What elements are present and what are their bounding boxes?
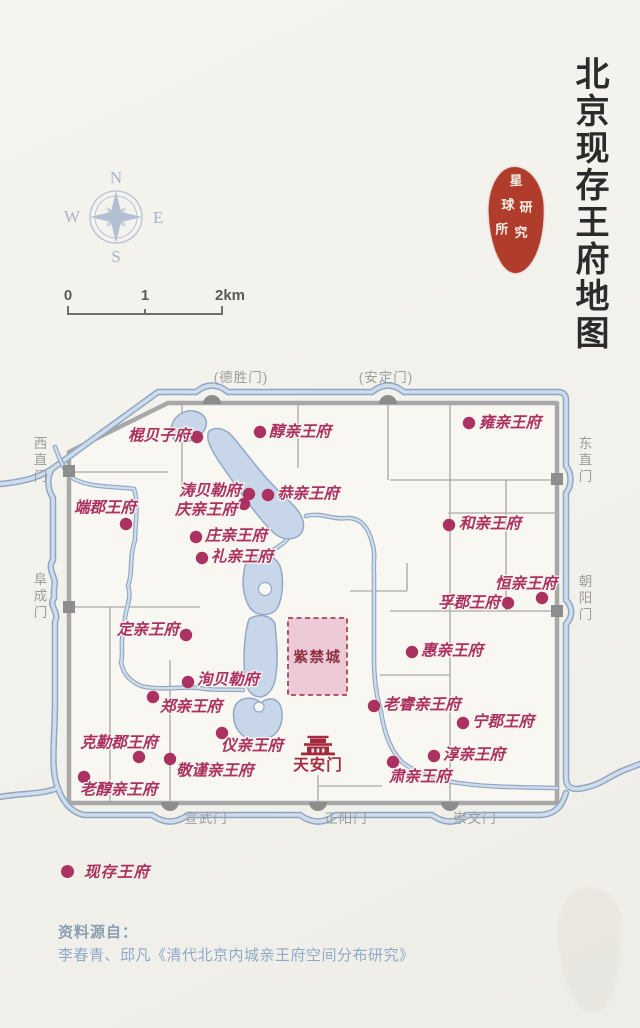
- mansion-dot-he-qin-wang-fu: [443, 519, 455, 531]
- compass-w-label: W: [64, 207, 81, 226]
- gate-mark-andingmen: [379, 395, 397, 404]
- gate-label-fuchengmen: 阜成门: [32, 571, 48, 622]
- mansion-dot-gong-qin-wang-fu: [262, 489, 274, 501]
- forbidden-city: 紫禁城: [288, 618, 347, 695]
- mansion-dot-duan-jun-wang-fu: [120, 518, 132, 530]
- mansion-label-chun2-qin-wang-fu: 淳亲王府: [443, 746, 508, 764]
- mansion-label-hui-qin-wang-fu: 惠亲王府: [421, 642, 486, 660]
- mansion-label-ke-qin-jun-wang-fu: 克勤郡王府: [80, 734, 160, 752]
- tiananmen-label: 天安门: [293, 755, 343, 774]
- mansion-dot-fu-jun-wang-fu: [502, 597, 514, 609]
- seal-char-xing: 星: [509, 174, 522, 187]
- mansion-dot-zhuang-qin-wang-fu: [190, 531, 202, 543]
- mansion-dot-ning-jun-wang-fu: [457, 717, 469, 729]
- mansion-label-lao-chun-qin-wang-fu: 老醇亲王府: [80, 781, 160, 799]
- legend-dot: [61, 865, 74, 878]
- gate-mark-fuchengmen: [63, 601, 75, 613]
- mansion-label-qing-qin-wang-fu: 庆亲王府: [174, 501, 240, 519]
- gate-label-deshengmen: (德胜门): [214, 370, 269, 385]
- mansion-lao-rui-qin-wang-fu: 老睿亲王府: [368, 696, 463, 714]
- mansion-dot-ke-qin-jun-wang-fu: [133, 751, 145, 763]
- seal-char-jiu: 究: [514, 226, 527, 239]
- gate-mark-chongwenmen: [441, 802, 459, 811]
- seal-char-yan: 研: [519, 200, 532, 213]
- mansion-dot-ding-qin-wang-fu: [180, 629, 192, 641]
- gate-mark-xizhimen: [63, 465, 75, 477]
- mansion-label-tao-beile-fu: 涛贝勒府: [179, 482, 244, 500]
- mansion-dot-yong-qin-wang-fu: [463, 417, 475, 429]
- mansion-dot-heng-qin-wang-fu: [536, 592, 548, 604]
- beihai-island: [259, 583, 272, 596]
- gate-label-dongzhimen: 东直门: [577, 436, 593, 486]
- gate-mark-chaoyangmen: [551, 605, 563, 617]
- mansion-label-gong-qin-wang-fu: 恭亲王府: [277, 485, 342, 503]
- compass-e-label: E: [153, 208, 163, 227]
- forbidden-city-label: 紫禁城: [294, 648, 342, 666]
- mansion-label-li-qin-wang-fu: 礼亲王府: [211, 548, 276, 566]
- source-line-1: 资料源自：: [58, 922, 415, 944]
- mansion-dot-qing-qin-wang-fu: [238, 498, 250, 510]
- mansion-label-yong-qin-wang-fu: 雍亲王府: [479, 414, 544, 432]
- compass-rose: N S E W: [64, 168, 163, 266]
- seal-char-suo: 所: [495, 222, 508, 235]
- legend: 现存王府: [61, 860, 150, 882]
- mansion-label-jing-jin-qin-wang-fu: 敬谨亲王府: [176, 762, 256, 780]
- mansion-label-su-qin-wang-fu: 肃亲王府: [388, 768, 454, 786]
- gate-label-andingmen: (安定门): [359, 370, 414, 385]
- mansion-dot-li-qin-wang-fu: [196, 552, 208, 564]
- gate-label-xizhimen: 西直门: [32, 436, 48, 486]
- mansion-dot-gun-beizi-fu: [191, 431, 203, 443]
- source-line-2: 李春青、邱凡《清代北京内城亲王府空间分布研究》: [58, 945, 415, 967]
- mansion-dot-zheng-qin-wang-fu: [147, 691, 159, 703]
- mansion-label-ding-qin-wang-fu: 定亲王府: [116, 621, 182, 639]
- mansion-dot-lao-rui-qin-wang-fu: [368, 700, 380, 712]
- mansion-label-xun-beile-fu: 洵贝勒府: [197, 671, 262, 689]
- compass-s-label: S: [111, 247, 120, 266]
- mansion-label-gun-beizi-fu: 棍贝子府: [128, 427, 193, 445]
- seal-char-qiu: 球: [501, 198, 514, 211]
- scale-label-0: 0: [64, 287, 72, 304]
- mansion-label-zhuang-qin-wang-fu: 庄亲王府: [204, 527, 270, 545]
- scale-label-2km: 2km: [215, 287, 245, 304]
- mansion-dot-xun-beile-fu: [182, 676, 194, 688]
- legend-label: 现存王府: [84, 860, 150, 882]
- mansion-label-ning-jun-wang-fu: 宁郡王府: [472, 713, 537, 731]
- mansion-label-zheng-qin-wang-fu: 郑亲王府: [159, 698, 225, 716]
- mansion-dot-su-qin-wang-fu: [387, 756, 399, 768]
- mansion-label-lao-rui-qin-wang-fu: 老睿亲王府: [383, 696, 463, 714]
- gate-label-chongwenmen: 崇文门: [453, 811, 497, 826]
- mansion-label-chun-qin-wang-fu: 醇亲王府: [269, 423, 334, 441]
- gate-label-xuanwumen: 宣武门: [184, 811, 228, 826]
- scale-bar-line: [68, 306, 222, 314]
- mansion-dot-chun2-qin-wang-fu: [428, 750, 440, 762]
- gate-mark-xuanwumen: [161, 802, 179, 811]
- scale-label-1: 1: [141, 287, 149, 304]
- gate-mark-zhengyangmen: [309, 802, 327, 811]
- scale-bar: 0 1 2km: [64, 287, 245, 314]
- poster-title: 北京现存王府地图: [564, 56, 613, 356]
- mansion-dot-hui-qin-wang-fu: [406, 646, 418, 658]
- mansion-label-yi-qin-wang-fu: 仪亲王府: [221, 737, 286, 755]
- mansion-label-heng-qin-wang-fu: 恒亲王府: [495, 575, 560, 593]
- gate-label-chaoyangmen: 朝阳门: [577, 574, 593, 624]
- mansion-label-duan-jun-wang-fu: 端郡王府: [74, 499, 139, 517]
- mansion-dot-jing-jin-qin-wang-fu: [164, 753, 176, 765]
- mansion-label-he-qin-wang-fu: 和亲王府: [459, 515, 524, 533]
- gate-mark-dongzhimen: [551, 473, 563, 485]
- mansion-label-fu-jun-wang-fu: 孚郡王府: [438, 594, 503, 612]
- compass-n-label: N: [110, 168, 122, 187]
- mansion-dot-chun-qin-wang-fu: [254, 426, 266, 438]
- nanhai-notch: [254, 702, 264, 712]
- source-credit: 资料源自： 李春青、邱凡《清代北京内城亲王府空间分布研究》: [58, 922, 415, 967]
- gate-mark-deshengmen: [203, 395, 221, 404]
- gate-label-zhengyangmen: 正阳门: [324, 811, 368, 826]
